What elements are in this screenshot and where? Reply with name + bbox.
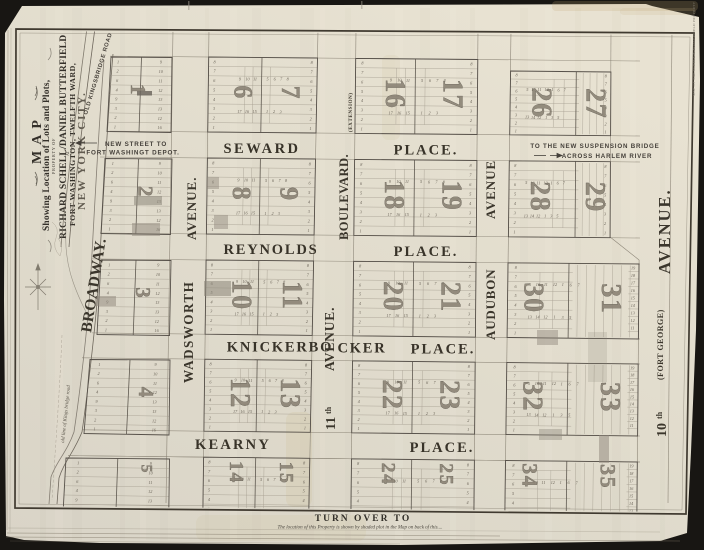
svg-text:5: 5 [568,413,570,418]
svg-text:SEWARD: SEWARD [223,141,300,157]
svg-text:2: 2 [361,117,363,122]
svg-text:12: 12 [553,282,557,287]
svg-text:2: 2 [358,417,360,422]
svg-text:2: 2 [470,118,472,123]
svg-text:4: 4 [134,387,158,399]
svg-text:5: 5 [359,292,361,297]
svg-text:13: 13 [528,314,532,319]
svg-text:31: 31 [595,283,626,314]
svg-text:3: 3 [469,210,471,215]
svg-text:1: 1 [117,59,119,64]
svg-text:PLACE.: PLACE. [394,143,459,159]
svg-text:13: 13 [158,97,162,102]
svg-text:2: 2 [310,117,312,122]
svg-text:13: 13 [631,311,635,316]
svg-text:5: 5 [469,191,471,196]
svg-text:2: 2 [209,415,211,420]
svg-text:1: 1 [209,424,211,429]
svg-text:3: 3 [468,311,470,316]
svg-text:22: 22 [376,380,407,411]
svg-text:1: 1 [93,427,95,432]
svg-text:5: 5 [262,378,264,383]
svg-text:15: 15 [248,409,252,414]
svg-text:3: 3 [275,409,277,414]
svg-text:1: 1 [514,331,516,336]
svg-text:14: 14 [629,501,633,506]
svg-text:2: 2 [515,121,517,126]
svg-text:2: 2 [268,409,270,414]
svg-text:12: 12 [148,489,152,494]
svg-text:11: 11 [157,180,161,185]
svg-text:1: 1 [552,413,554,418]
svg-text:4: 4 [514,303,516,308]
svg-text:3: 3 [560,413,562,418]
svg-text:32: 32 [517,381,548,412]
svg-text:9: 9 [274,187,303,202]
svg-text:2: 2 [304,416,306,421]
svg-text:1: 1 [261,409,263,414]
svg-text:30: 30 [518,283,549,314]
svg-text:1: 1 [604,231,606,236]
svg-text:TURN OVER TO: TURN OVER TO [315,514,412,524]
svg-text:12: 12 [158,116,162,121]
svg-text:3: 3 [212,208,214,213]
svg-text:th: th [655,411,664,419]
svg-text:13: 13 [148,499,152,504]
svg-text:2: 2 [306,319,308,324]
svg-text:5: 5 [360,190,362,195]
svg-text:27: 27 [580,88,611,119]
svg-text:10: 10 [655,423,670,437]
svg-text:13: 13 [630,409,634,414]
svg-text:(FORT GEORGE): (FORT GEORGE) [656,309,665,380]
svg-text:th: th [324,406,333,414]
svg-text:5: 5 [303,489,305,494]
svg-text:5: 5 [265,178,267,183]
svg-text:28: 28 [524,181,555,212]
svg-text:3: 3 [361,108,363,113]
svg-text:1: 1 [515,129,517,134]
svg-text:3: 3 [358,408,360,413]
svg-text:6: 6 [228,85,257,100]
svg-text:5: 5 [512,491,514,496]
svg-text:3: 3 [435,212,437,217]
svg-text:2: 2 [270,312,272,317]
svg-text:3: 3 [131,287,155,299]
svg-text:WADSWORTH: WADSWORTH [181,281,196,383]
svg-text:5: 5 [421,78,423,83]
svg-text:5: 5 [213,88,215,93]
svg-text:5: 5 [418,380,420,385]
svg-text:4: 4 [515,105,517,110]
svg-text:3: 3 [210,309,212,314]
svg-text:1: 1 [98,362,100,367]
svg-text:8: 8 [227,187,256,202]
svg-text:4: 4 [76,488,78,493]
svg-text:1: 1 [513,428,515,433]
svg-text:5: 5 [419,281,421,286]
svg-text:4: 4 [210,299,212,304]
svg-text:15: 15 [631,296,635,301]
svg-text:13: 13 [155,310,159,315]
svg-text:4: 4 [213,97,215,102]
svg-text:12: 12 [158,88,162,93]
svg-text:11: 11 [630,423,634,428]
svg-text:4: 4 [71,142,74,148]
svg-text:3: 3 [115,106,117,111]
svg-text:3: 3 [561,315,563,320]
svg-text:1: 1 [420,212,422,217]
svg-text:1: 1 [264,211,266,216]
svg-text:1: 1 [421,111,423,116]
svg-text:4: 4 [468,302,470,307]
svg-text:13: 13 [157,208,161,213]
svg-text:15: 15 [275,462,297,485]
svg-text:15: 15 [405,212,409,217]
svg-text:12: 12 [543,315,547,320]
svg-text:17: 17 [436,79,467,110]
svg-text:2: 2 [426,411,428,416]
svg-text:KEARNY: KEARNY [195,437,271,453]
svg-text:4: 4 [359,301,361,306]
svg-text:3: 3 [514,211,516,216]
svg-text:5: 5 [515,97,517,102]
svg-text:1: 1 [210,327,212,332]
svg-text:15: 15 [249,312,253,317]
svg-text:2: 2 [111,170,113,175]
svg-text:2: 2 [273,109,275,114]
svg-text:1: 1 [544,213,546,218]
svg-text:3: 3 [306,310,308,315]
svg-text:34: 34 [518,463,543,488]
svg-text:3: 3 [467,409,469,414]
svg-text:4: 4 [310,98,312,103]
svg-text:5: 5 [420,179,422,184]
svg-text:23: 23 [434,380,465,411]
svg-text:2: 2 [117,69,119,74]
svg-text:25: 25 [435,463,457,486]
svg-text:13: 13 [152,409,156,414]
svg-text:NEW STREET TO: NEW STREET TO [105,141,167,148]
svg-text:2: 2 [114,115,116,120]
svg-text:12: 12 [224,378,255,409]
svg-text:14: 14 [631,303,635,308]
svg-text:13: 13 [524,213,528,218]
svg-text:1: 1 [108,262,110,267]
svg-text:12: 12 [156,218,160,223]
svg-text:14: 14 [225,461,247,484]
svg-text:1: 1 [468,330,470,335]
svg-text:33: 33 [594,382,625,413]
svg-text:2: 2 [360,219,362,224]
svg-text:The location of this Property: The location of this Property is shown b… [277,526,442,531]
svg-text:1: 1 [562,282,564,287]
svg-text:4: 4 [467,400,469,405]
svg-text:2: 2 [108,272,110,277]
svg-text:AVENUE.: AVENUE. [184,177,199,240]
svg-text:5: 5 [569,315,571,320]
svg-text:4: 4 [107,290,109,295]
svg-text:AVENUE: AVENUE [483,160,498,219]
svg-text:5: 5 [209,388,211,393]
svg-text:2: 2 [210,318,212,323]
svg-text:29: 29 [579,182,610,213]
svg-text:15: 15 [403,411,407,416]
svg-text:3: 3 [310,107,312,112]
svg-text:2: 2 [271,211,273,216]
svg-text:11: 11 [156,281,160,286]
svg-text:5: 5 [513,392,515,397]
svg-text:2: 2 [94,417,96,422]
svg-text:5: 5 [267,77,269,82]
svg-text:5: 5 [514,293,516,298]
svg-text:MAP OF THE SCHELL & BUTTERFIEL: MAP OF THE SCHELL & BUTTERFIELD PROPERTY [692,1,696,96]
svg-text:1: 1 [112,161,114,166]
svg-text:2: 2 [213,116,215,121]
svg-text:13: 13 [155,300,159,305]
svg-text:1: 1 [359,329,361,334]
svg-text:5: 5 [467,391,469,396]
svg-text:PLACE.: PLACE. [411,342,476,358]
svg-text:13: 13 [158,107,162,112]
svg-text:AVENUE.: AVENUE. [322,307,337,371]
svg-text:35: 35 [595,464,620,489]
svg-text:2: 2 [468,321,470,326]
svg-text:5: 5 [212,189,214,194]
svg-text:3: 3 [470,109,472,114]
svg-text:12: 12 [152,418,156,423]
svg-text:4: 4 [308,199,310,204]
svg-text:15: 15 [251,211,255,216]
svg-text:5: 5 [308,190,310,195]
svg-text:3: 3 [95,408,97,413]
svg-text:11: 11 [153,381,157,386]
svg-text:5: 5 [208,488,210,493]
svg-text:TO THE NEW SUSPENSION BRIDGE: TO THE NEW SUSPENSION BRIDGE [530,143,659,150]
svg-text:5: 5 [137,464,154,474]
svg-text:1: 1 [105,328,107,333]
svg-text:FORT WASHINGT DEPOT.: FORT WASHINGT DEPOT. [86,150,179,157]
svg-text:24: 24 [377,463,399,486]
svg-text:2: 2 [359,320,361,325]
svg-text:2: 2 [513,419,515,424]
svg-text:26: 26 [525,88,556,119]
svg-text:19: 19 [435,180,466,211]
svg-text:2: 2 [109,217,111,222]
svg-text:1: 1 [470,127,472,132]
svg-text:1: 1 [357,426,359,431]
svg-text:5: 5 [310,88,312,93]
svg-text:11: 11 [324,417,339,430]
svg-text:3: 3 [308,209,310,214]
svg-text:5: 5 [263,279,265,284]
svg-text:1: 1 [213,125,215,130]
svg-text:1: 1 [266,109,268,114]
svg-text:12: 12 [551,480,555,485]
svg-text:4: 4 [96,390,98,395]
svg-text:3: 3 [433,411,435,416]
svg-text:15: 15 [406,110,410,115]
svg-text:4: 4 [110,189,112,194]
svg-text:4: 4 [514,201,516,206]
svg-text:2: 2 [211,217,213,222]
svg-text:3: 3 [514,312,516,317]
svg-text:BOULEVARD.: BOULEVARD. [337,154,351,240]
svg-text:5: 5 [467,491,469,496]
svg-text:3: 3 [513,410,515,415]
svg-text:1: 1 [560,480,562,485]
svg-text:AUDUBON: AUDUBON [483,269,498,340]
svg-text:5: 5 [470,90,472,95]
svg-text:5: 5 [468,293,470,298]
svg-text:1: 1 [114,125,116,130]
svg-text:13: 13 [526,412,530,417]
svg-text:7: 7 [276,86,305,101]
svg-text:4: 4 [361,98,363,103]
svg-text:12: 12 [630,416,634,421]
svg-text:5: 5 [357,489,359,494]
svg-text:2: 2 [308,218,310,223]
svg-text:11: 11 [252,178,256,183]
svg-text:14: 14 [530,213,534,218]
svg-text:1: 1 [304,425,306,430]
svg-text:1: 1 [419,313,421,318]
svg-text:3: 3 [434,313,436,318]
svg-text:1: 1 [469,229,471,234]
svg-text:1: 1 [561,381,563,386]
svg-text:11: 11 [148,480,152,485]
svg-text:3: 3 [359,310,361,315]
svg-text:18: 18 [378,180,409,211]
svg-text:11: 11 [159,78,163,83]
svg-text:14: 14 [535,315,539,320]
svg-text:1: 1 [360,228,362,233]
svg-text:4: 4 [357,499,359,504]
svg-text:2: 2 [427,313,429,318]
svg-text:REYNOLDS: REYNOLDS [224,242,319,258]
svg-text:3: 3 [209,406,211,411]
svg-text:4: 4 [469,201,471,206]
svg-text:14: 14 [630,402,634,407]
svg-text:CKER: CKER [337,341,386,357]
svg-text:1: 1 [109,227,111,232]
svg-text:12: 12 [552,381,556,386]
svg-text:2: 2 [605,121,607,126]
svg-text:14: 14 [534,412,538,417]
svg-text:1: 1 [308,228,310,233]
svg-text:2: 2 [469,220,471,225]
svg-text:2: 2 [467,418,469,423]
svg-text:2: 2 [604,221,606,226]
svg-text:3: 3 [106,309,108,314]
svg-text:3: 3 [278,211,280,216]
svg-text:5: 5 [260,477,262,482]
svg-text:12: 12 [542,412,546,417]
svg-text:15: 15 [253,109,257,114]
svg-text:11: 11 [253,76,257,81]
svg-text:1: 1 [513,230,515,235]
svg-text:15: 15 [629,494,633,499]
svg-text:15: 15 [630,394,634,399]
svg-text:1: 1 [263,312,265,317]
svg-text:3: 3 [280,109,282,114]
svg-text:16: 16 [379,78,410,109]
svg-text:1: 1 [361,126,363,131]
svg-text:5: 5 [514,192,516,197]
svg-text:4: 4 [467,500,469,505]
svg-text:4: 4 [209,397,211,402]
svg-text:4: 4 [212,198,214,203]
svg-text:5: 5 [557,115,559,120]
svg-text:1: 1 [77,460,79,465]
svg-text:4: 4 [116,87,118,92]
svg-text:2: 2 [429,111,431,116]
svg-text:ACROSS HARLEM RIVER: ACROSS HARLEM RIVER [562,153,653,160]
svg-text:PLACE.: PLACE. [410,440,475,456]
svg-text:2: 2 [514,220,516,225]
svg-text:15: 15 [404,313,408,318]
svg-text:12: 12 [155,319,159,324]
svg-text:1: 1 [467,427,469,432]
svg-text:12: 12 [631,318,635,323]
svg-text:3: 3 [109,208,111,213]
svg-text:1: 1 [211,227,213,232]
svg-text:PROPERTY OF: PROPERTY OF [51,138,56,174]
svg-text:20: 20 [377,281,408,312]
svg-text:2: 2 [428,212,430,217]
svg-text:4: 4 [512,500,514,505]
svg-text:13: 13 [274,378,305,409]
svg-text:3: 3 [213,106,215,111]
svg-text:12: 12 [536,213,540,218]
svg-text:1: 1 [554,315,556,320]
svg-text:2: 2 [98,371,100,376]
svg-text:2: 2 [77,470,79,475]
svg-text:5: 5 [417,479,419,484]
svg-text:11: 11 [276,281,307,310]
svg-text:4: 4 [360,200,362,205]
svg-text:1: 1 [604,129,606,134]
svg-text:1: 1 [306,328,308,333]
svg-text:5: 5 [556,214,558,219]
svg-text:1: 1 [309,126,311,131]
svg-text:4: 4 [208,497,210,502]
svg-text:1: 1 [418,411,420,416]
svg-text:2: 2 [514,321,516,326]
svg-text:AVENUE.: AVENUE. [655,188,674,274]
svg-text:5: 5 [361,89,363,94]
svg-text:3: 3 [515,113,517,118]
svg-text:4: 4 [302,498,304,503]
svg-text:3: 3 [550,214,552,219]
svg-text:(EXTENSION): (EXTENSION) [347,92,354,132]
svg-text:3: 3 [436,111,438,116]
svg-text:PLACE.: PLACE. [394,244,459,260]
svg-text:4: 4 [358,399,360,404]
svg-text:21: 21 [434,282,465,313]
svg-text:11: 11 [402,478,406,483]
svg-text:11: 11 [631,326,635,331]
svg-text:3: 3 [360,209,362,214]
svg-text:5: 5 [358,390,360,395]
svg-text:13: 13 [152,400,156,405]
svg-text:4: 4 [513,401,515,406]
svg-text:3: 3 [276,312,278,317]
svg-text:KNICKERBO: KNICKERBO [227,340,333,356]
svg-text:2: 2 [105,318,107,323]
svg-text:4: 4 [470,99,472,104]
